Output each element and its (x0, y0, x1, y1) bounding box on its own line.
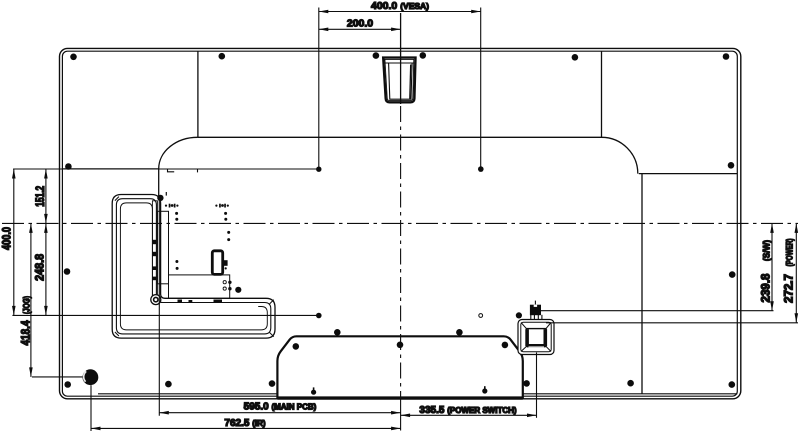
svg-text:239.8: 239.8 (761, 273, 773, 303)
svg-text:272.7: 272.7 (783, 274, 795, 303)
svg-text:418.4: 418.4 (21, 320, 33, 346)
svg-text:(POWER): (POWER) (784, 239, 795, 267)
svg-text:(JOG): (JOG) (22, 296, 33, 314)
svg-text:248.8: 248.8 (35, 253, 47, 281)
svg-text:200.0: 200.0 (347, 18, 373, 30)
svg-text:400.0 (VESA): 400.0 (VESA) (371, 0, 429, 12)
svg-text:762.5 (IR): 762.5 (IR) (224, 418, 265, 429)
svg-text:400.0: 400.0 (2, 227, 14, 250)
svg-text:(S/W): (S/W) (762, 240, 773, 261)
svg-text:335.5 (POWER SWITCH): 335.5 (POWER SWITCH) (419, 405, 516, 416)
svg-text:595.0 (MAIN PCB): 595.0 (MAIN PCB) (244, 402, 317, 413)
svg-text:151.2: 151.2 (35, 186, 47, 207)
